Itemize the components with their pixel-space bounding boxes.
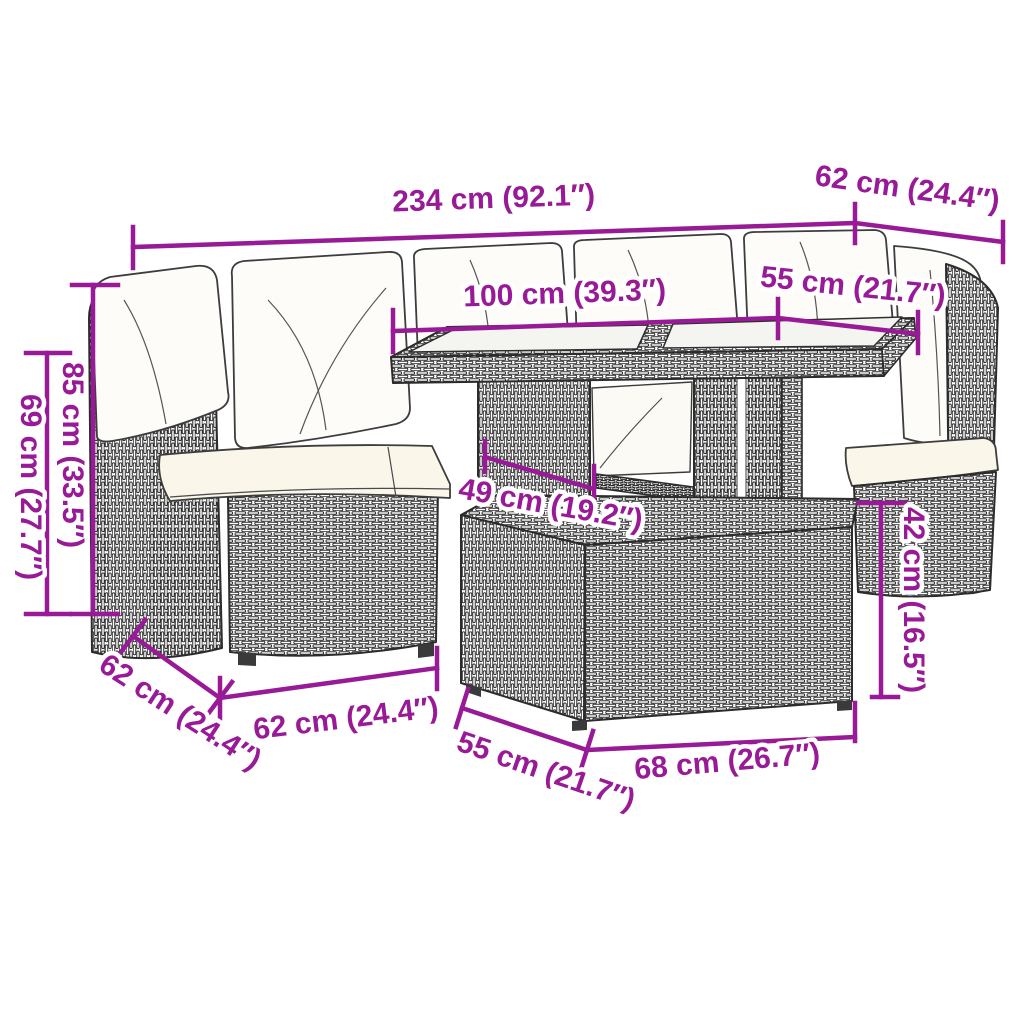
dim-armrest-height-label: 69 cm (27.7″) <box>14 394 47 580</box>
left-sofa-foot <box>238 652 256 666</box>
ottoman-front-face <box>585 527 852 721</box>
diagram-canvas: 234 cm (92.1″) 62 cm (24.4″) 100 cm (39.… <box>0 0 1024 1024</box>
dim-sofa-width-label: 62 cm (24.4″) <box>251 691 440 746</box>
dim-ottoman-depth-label: 55 cm (21.7″) <box>453 725 640 817</box>
dim-corner-depth-label: 62 cm (24.4″) <box>813 159 1002 218</box>
center-seat-cushion <box>592 382 692 476</box>
dim-sofa-width-line <box>220 668 437 698</box>
table-pedestal-right-side <box>782 363 802 516</box>
left-seat-cushion <box>159 445 450 501</box>
left-sofa-base <box>228 486 438 656</box>
ottoman-foot <box>837 700 852 711</box>
ottoman-foot <box>572 720 587 731</box>
dim-overall-width-label: 234 cm (92.1″) <box>392 178 596 218</box>
dim-back-height-label: 85 cm (33.5″) <box>56 362 89 548</box>
pillow-left <box>232 252 410 448</box>
furniture-dimension-diagram: 234 cm (92.1″) 62 cm (24.4″) 100 cm (39.… <box>0 0 1024 1024</box>
dim-seat-height-label: 42 cm (16.5″) <box>897 507 930 693</box>
table-pedestal-slat <box>737 371 746 518</box>
left-sofa-foot <box>418 643 434 658</box>
